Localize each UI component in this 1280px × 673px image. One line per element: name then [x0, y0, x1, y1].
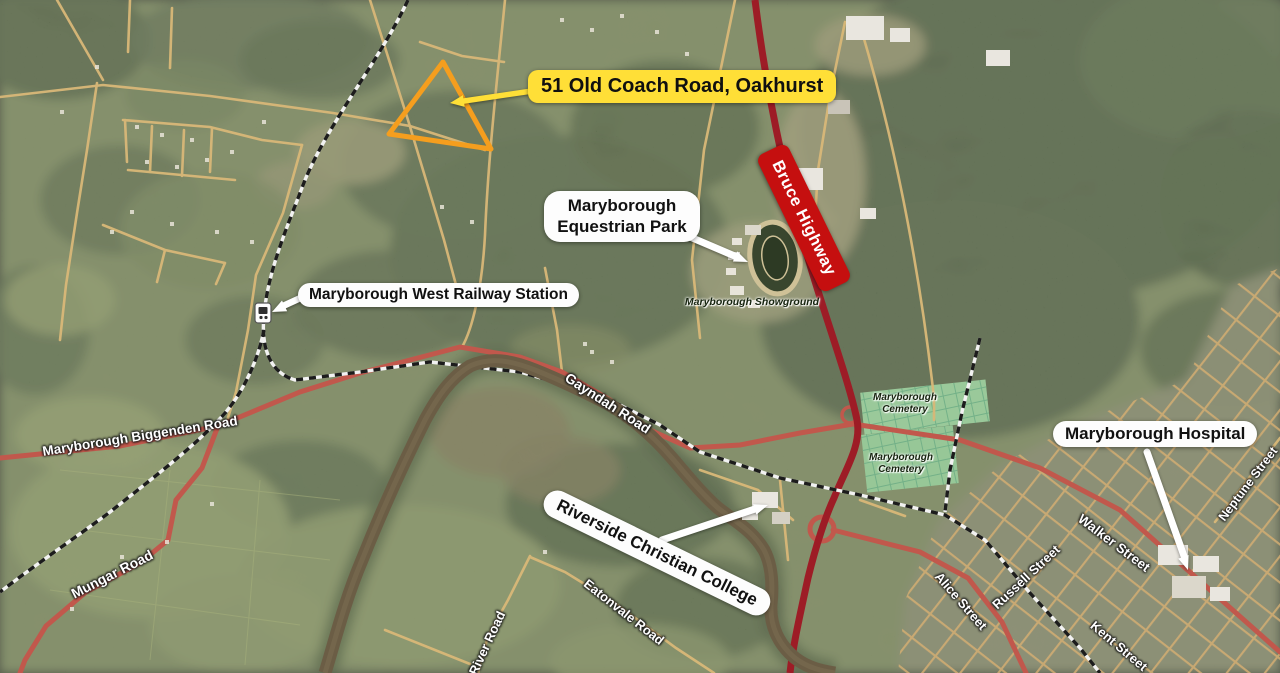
- hospital-text: Maryborough Hospital: [1065, 424, 1245, 443]
- showground-map-label: Maryborough Showground: [685, 296, 819, 308]
- railway-station-text: Maryborough West Railway Station: [309, 286, 568, 303]
- cemetery-south-map-label: Maryborough Cemetery: [861, 452, 941, 476]
- map-canvas: 51 Old Coach Road, Oakhurst Maryborough …: [0, 0, 1280, 673]
- hospital-callout: Maryborough Hospital: [1053, 421, 1257, 447]
- property-address-text: 51 Old Coach Road, Oakhurst: [541, 75, 823, 97]
- equestrian-park-callout: Maryborough Equestrian Park: [544, 191, 700, 242]
- cemetery-north-map-label: Maryborough Cemetery: [865, 392, 945, 416]
- railway-station-callout: Maryborough West Railway Station: [298, 283, 579, 307]
- railway-station-icon: [255, 303, 271, 323]
- equestrian-park-text: Maryborough Equestrian Park: [557, 196, 686, 236]
- property-address-callout: 51 Old Coach Road, Oakhurst: [528, 70, 836, 103]
